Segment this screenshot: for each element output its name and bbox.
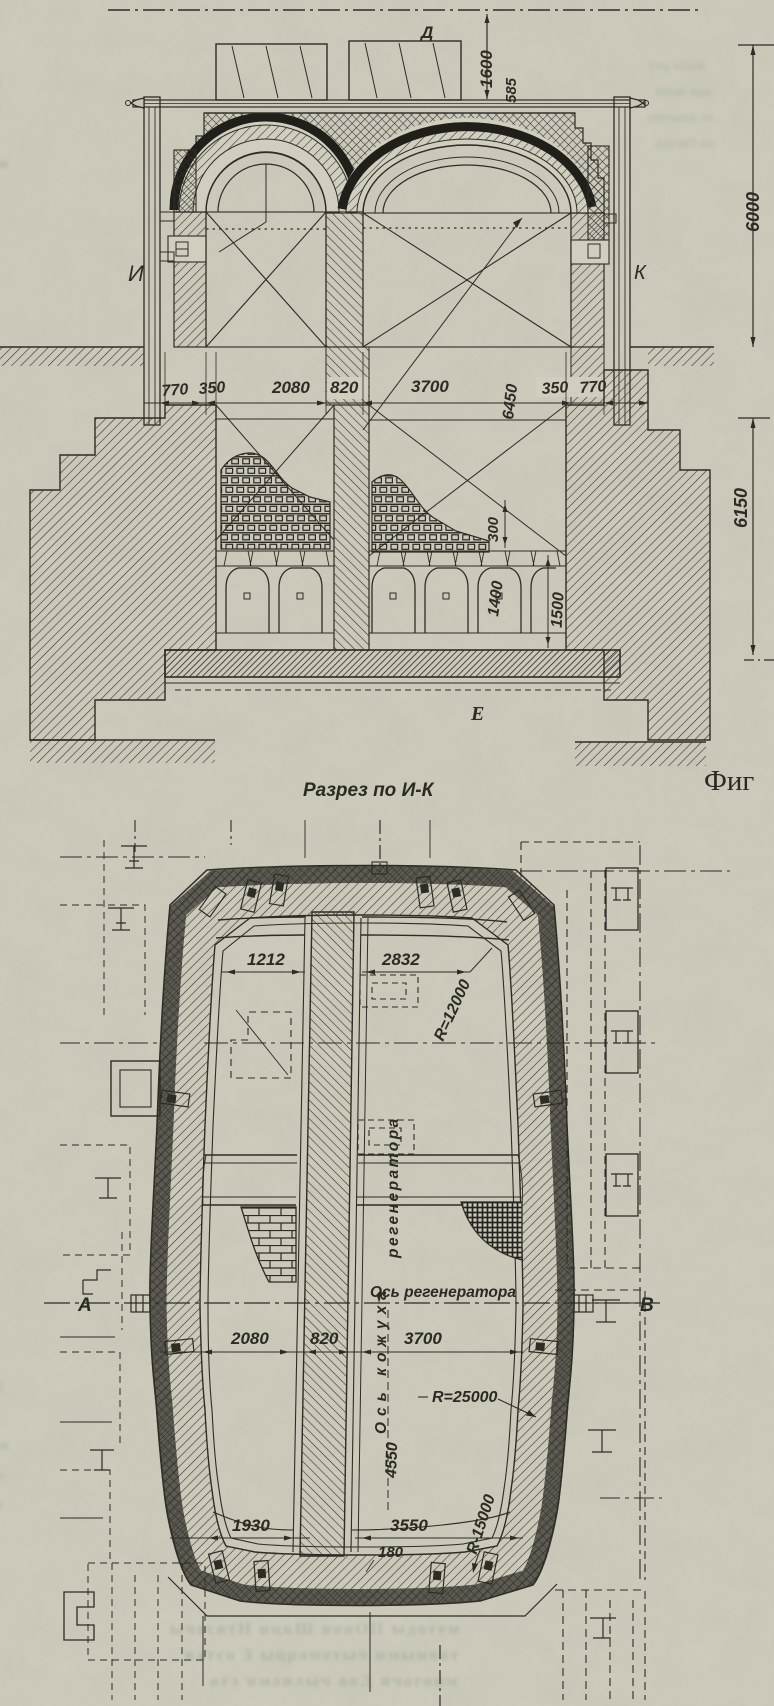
svg-text:1600: 1600 [477, 50, 496, 88]
svg-text:2832: 2832 [381, 950, 420, 969]
svg-text:И: И [128, 261, 144, 286]
svg-text:4550: 4550 [383, 1442, 401, 1479]
svg-text:R=25000: R=25000 [432, 1389, 497, 1406]
svg-text:ычосвтН нцкШ нояОП ыдотем: ычосвтН нцкШ нояОП ыдотем [170, 1619, 461, 1638]
svg-text:А: А [77, 1295, 92, 1316]
svg-text:180: 180 [378, 1544, 404, 1561]
svg-text:Е: Е [470, 703, 484, 725]
svg-text:мичаго те: мичаго те [648, 110, 715, 126]
svg-text:3700: 3700 [411, 377, 449, 396]
svg-text:3700: 3700 [404, 1329, 442, 1348]
svg-text:770: 770 [579, 378, 607, 397]
svg-text:350: 350 [541, 379, 569, 398]
svg-text:300: 300 [485, 516, 502, 542]
svg-text:6000: 6000 [743, 192, 763, 232]
svg-text:пово: пово [0, 1468, 3, 1484]
svg-text:Фиг: Фиг [704, 765, 754, 797]
svg-text:3550: 3550 [390, 1516, 428, 1535]
svg-text:820: 820 [330, 378, 359, 397]
svg-text:Ось кожуха: Ось кожуха [373, 1285, 390, 1434]
svg-text:нако: нако [0, 1438, 8, 1454]
svg-text:2080: 2080 [230, 1329, 269, 1348]
svg-text:770: 770 [161, 381, 189, 400]
svg-text:муно: муно [0, 156, 8, 172]
svg-text:1500: 1500 [549, 592, 568, 629]
svg-text:В: В [640, 1295, 654, 1316]
svg-text:treat онь: treat онь [655, 84, 713, 100]
svg-text:585: 585 [503, 77, 520, 103]
svg-text:К: К [634, 262, 647, 284]
svg-text:6150: 6150 [731, 488, 751, 528]
svg-text:тед вохи: тед вохи [648, 58, 705, 74]
svg-text:1212: 1212 [247, 950, 285, 969]
svg-text:регенератора: регенератора [385, 1116, 402, 1259]
svg-text:Д: Д [419, 23, 433, 42]
svg-text:ватсо З ыцраметыч имынчот: ватсо З ыцраметыч имынчот [185, 1645, 461, 1664]
svg-text:отэ иманлыч воД ичогонм: отэ иманлыч воД ичогонм [210, 1671, 459, 1690]
svg-text:Ось регенератора: Ось регенератора [370, 1284, 516, 1301]
svg-text:одтаО ве: одтаО ве [655, 136, 715, 152]
svg-text:820: 820 [310, 1329, 339, 1348]
svg-text:1930: 1930 [232, 1516, 270, 1535]
svg-text:сред: сред [0, 1378, 3, 1394]
svg-text:2080: 2080 [271, 378, 310, 397]
svg-text:350: 350 [198, 379, 226, 398]
svg-text:Разрез по И-К: Разрез по И-К [303, 780, 435, 801]
